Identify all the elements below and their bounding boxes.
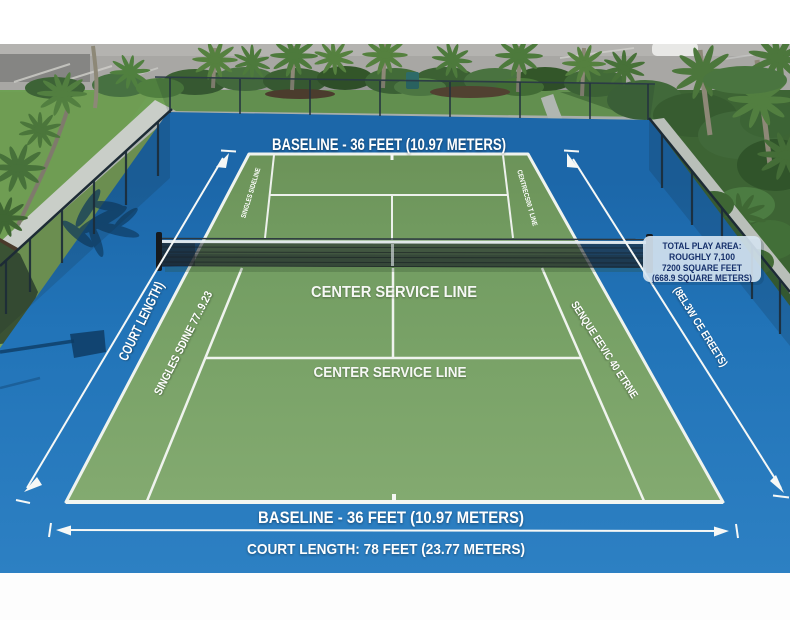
svg-text:CENTER SERVICE LINE: CENTER SERVICE LINE	[311, 284, 477, 301]
svg-text:TOTAL PLAY AREA:: TOTAL PLAY AREA:	[663, 241, 742, 252]
svg-text:BASELINE - 36 FEET (10.97 METE: BASELINE - 36 FEET (10.97 METERS)	[258, 508, 524, 527]
svg-text:ROUGHLY 7,100: ROUGHLY 7,100	[669, 252, 735, 263]
svg-text:COURT LENGTH: 78 FEET (23.77 M: COURT LENGTH: 78 FEET (23.77 METERS)	[247, 541, 525, 558]
svg-text:BASELINE - 36 FEET (10.97 METE: BASELINE - 36 FEET (10.97 METERS)	[272, 136, 506, 154]
svg-text:CENTER SERVICE LINE: CENTER SERVICE LINE	[314, 365, 467, 381]
svg-text:(668.9 SQUARE METERS): (668.9 SQUARE METERS)	[652, 273, 752, 284]
